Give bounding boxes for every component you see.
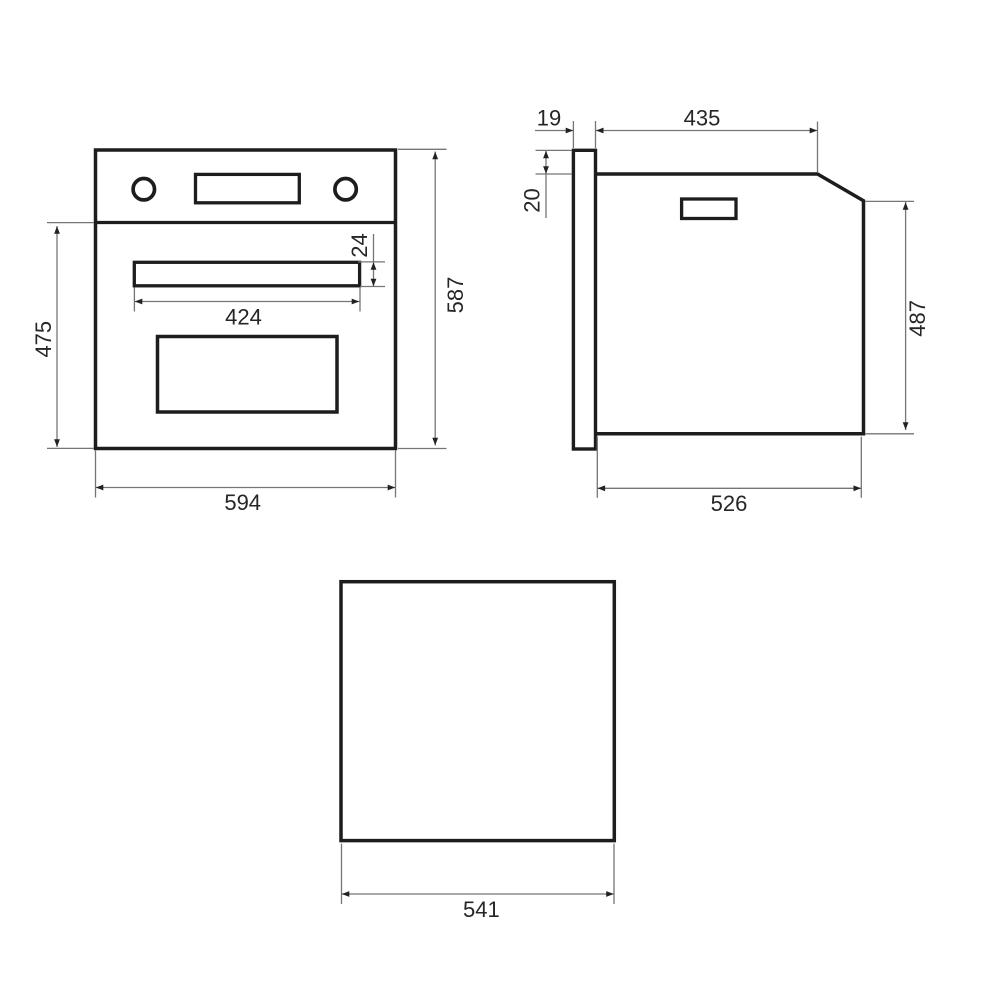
svg-text:475: 475 [31,321,56,358]
svg-text:24: 24 [347,233,372,257]
svg-text:435: 435 [684,106,721,131]
svg-text:526: 526 [711,491,748,516]
svg-text:587: 587 [443,277,468,314]
svg-text:487: 487 [905,300,930,337]
svg-text:424: 424 [225,305,262,330]
svg-text:594: 594 [224,490,261,515]
svg-text:20: 20 [520,188,545,212]
svg-text:19: 19 [537,106,561,131]
svg-text:541: 541 [463,897,500,922]
